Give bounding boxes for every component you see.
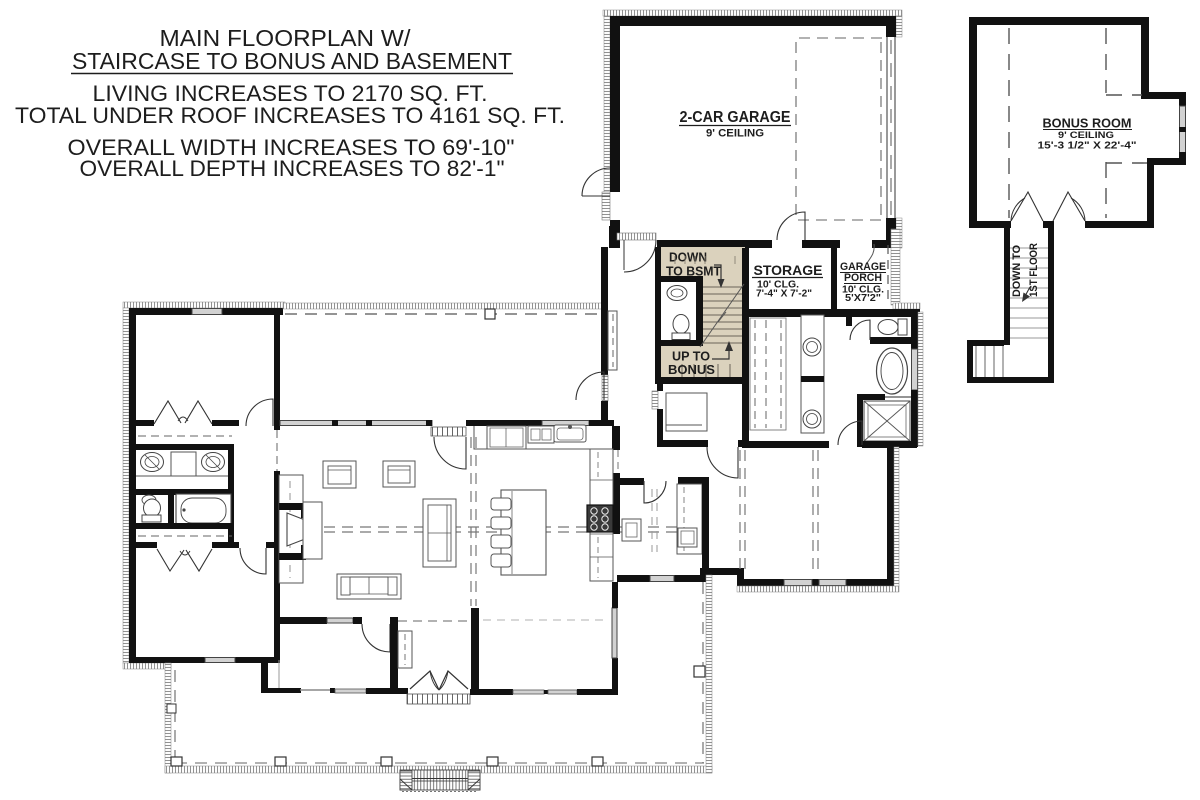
svg-text:7'-4" X 7'-2": 7'-4" X 7'-2" (756, 289, 812, 300)
svg-text:DOWN TO: DOWN TO (1011, 245, 1023, 297)
svg-text:15'-3 1/2" X 22'-4": 15'-3 1/2" X 22'-4" (1038, 141, 1137, 152)
svg-text:TOTAL UNDER ROOF INCREASES TO: TOTAL UNDER ROOF INCREASES TO 4161 SQ. F… (15, 103, 565, 128)
svg-text:OVERALL DEPTH INCREASES TO 82': OVERALL DEPTH INCREASES TO 82'-1" (80, 156, 505, 181)
svg-text:UP TO: UP TO (672, 350, 710, 364)
svg-text:STORAGE: STORAGE (754, 262, 823, 278)
svg-text:BONUS: BONUS (668, 363, 715, 377)
svg-text:STAIRCASE TO BONUS AND BASEMEN: STAIRCASE TO BONUS AND BASEMENT (72, 48, 512, 74)
svg-text:5'X7'2": 5'X7'2" (845, 292, 881, 304)
svg-text:1ST FLOOR: 1ST FLOOR (1028, 243, 1040, 297)
svg-text:9' CEILING: 9' CEILING (706, 128, 764, 140)
svg-text:BONUS ROOM: BONUS ROOM (1043, 117, 1132, 131)
svg-text:9' CEILING: 9' CEILING (1058, 130, 1114, 141)
svg-text:TO BSMT: TO BSMT (666, 264, 721, 279)
svg-text:2-CAR GARAGE: 2-CAR GARAGE (680, 109, 791, 126)
svg-text:PORCH: PORCH (844, 272, 882, 284)
